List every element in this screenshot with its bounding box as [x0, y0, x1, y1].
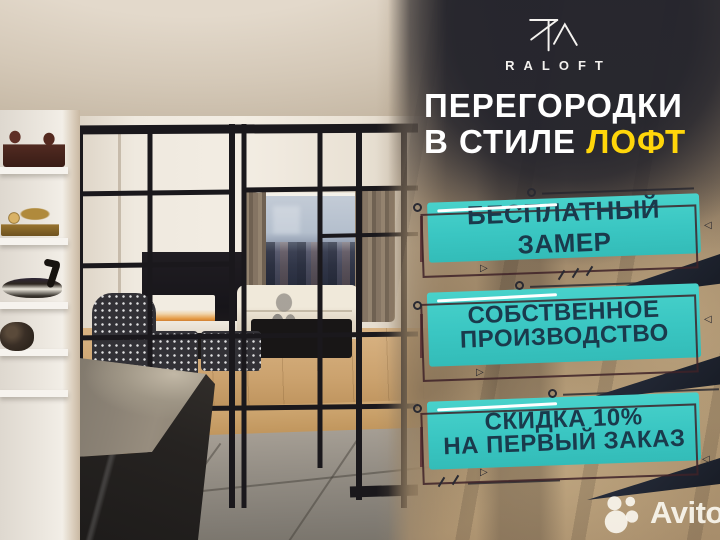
headline-highlight: ЛОФТ — [586, 123, 686, 160]
shelf-board — [0, 167, 68, 174]
shelf-unit — [0, 110, 80, 540]
deco-triangle-icon: ▷ — [480, 264, 488, 274]
avito-label: Avito — [650, 495, 720, 531]
shelf-board — [0, 390, 68, 397]
shelf-board — [0, 238, 68, 245]
goose-figurine — [2, 262, 74, 300]
badge-free-measure: БЕСПЛАТНЫЙ ЗАМЕР — [427, 193, 701, 262]
deco-ring — [413, 301, 422, 310]
promo-panel: RALOFT ПЕРЕГОРОДКИ В СТИЛЕ ЛОФТ ▷ ◁ — [388, 0, 720, 540]
deco-triangle-icon: ◁ — [704, 221, 712, 231]
headline-line2-prefix: В СТИЛЕ — [424, 123, 576, 160]
deco-triangle-icon: ◁ — [704, 315, 712, 325]
deco-ring — [515, 281, 524, 290]
bronze-vase — [0, 322, 34, 351]
brand-name: RALOFT — [388, 58, 720, 73]
deco-ring — [548, 389, 557, 398]
avito-watermark: Avito — [603, 491, 720, 535]
headline-line1: ПЕРЕГОРОДКИ — [424, 88, 714, 124]
raloft-logo: RALOFT — [388, 14, 720, 73]
ad-banner: RALOFT ПЕРЕГОРОДКИ В СТИЛЕ ЛОФТ ▷ ◁ — [0, 0, 720, 540]
badge-discount: СКИДКА 10% НА ПЕРВЫЙ ЗАКАЗ — [427, 392, 701, 469]
badge-label: БЕСПЛАТНЫЙ ЗАМЕР — [427, 192, 701, 263]
avito-logo-icon — [603, 491, 647, 535]
gold-clock-figurine — [1, 196, 59, 236]
deco-ring — [413, 203, 422, 212]
deco-ring — [413, 404, 422, 413]
headline: ПЕРЕГОРОДКИ В СТИЛЕ ЛОФТ — [424, 88, 714, 160]
deco-triangle-icon: ◁ — [702, 455, 710, 465]
shelf-board — [0, 302, 68, 309]
badge-own-production: СОБСТВЕННОЕ ПРОИЗВОДСТВО — [427, 283, 701, 366]
deco-ring — [527, 188, 536, 197]
goose-head — [43, 258, 60, 268]
headline-line2: В СТИЛЕ ЛОФТ — [424, 124, 714, 160]
deco-triangle-icon: ▷ — [480, 468, 488, 478]
bronze-clock-figurine — [3, 130, 65, 167]
deco-triangle-icon: ▷ — [476, 368, 484, 378]
raloft-monogram-icon — [528, 14, 580, 52]
